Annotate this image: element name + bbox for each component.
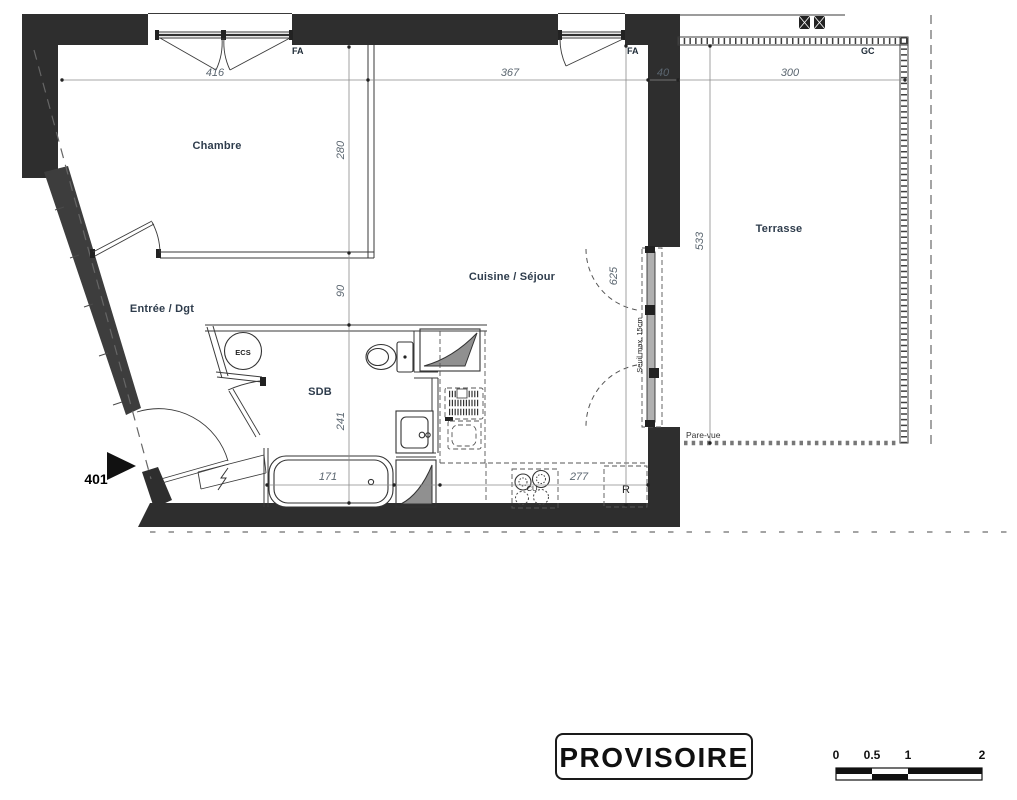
dim-sejour-depth: 625 — [608, 266, 620, 285]
dim-corridor: 90 — [335, 284, 347, 297]
dim-chambre-width: 416 — [206, 67, 225, 79]
room-label-sdb: SDB — [308, 386, 332, 398]
railing-label: GC — [861, 46, 875, 56]
lower-cabinet — [396, 460, 436, 507]
dim-bathtub: 171 — [319, 471, 337, 483]
scale-tick-2: 2 — [979, 748, 986, 762]
posts — [799, 16, 825, 29]
entry-closet — [198, 455, 266, 490]
dim-sdb-depth: 241 — [335, 412, 347, 431]
dim-sejour-width: 367 — [501, 67, 520, 79]
floor-plan-401: FA FA — [0, 0, 1017, 800]
window-chambre: FA — [148, 14, 304, 71]
scale-tick-1: 1 — [905, 748, 912, 762]
room-label-chambre: Chambre — [192, 140, 241, 152]
water-heater-label: ECS — [235, 348, 250, 357]
water-heater: ECS — [225, 333, 262, 370]
stamp-label: PROVISOIRE — [559, 742, 748, 773]
window-sejour-label: FA — [627, 46, 639, 56]
door-sdb — [228, 381, 260, 437]
bay-window-door: Seuil max. 15cm — [586, 246, 662, 427]
dim-terrasse-depth: 533 — [694, 231, 706, 250]
kitchen: CU R — [396, 329, 648, 508]
scale-tick-0: 0 — [833, 748, 840, 762]
terrasse: GC Pare-vue — [678, 15, 931, 445]
floor-plan-sheet: FA FA — [0, 0, 1017, 800]
dim-chambre-depth: 280 — [335, 140, 347, 160]
overhang-dashed-line — [34, 50, 151, 479]
provisoire-stamp: PROVISOIRE — [556, 734, 752, 779]
unit-number: 401 — [84, 471, 108, 487]
toilet — [366, 342, 413, 372]
window-chambre-label: FA — [292, 46, 304, 56]
room-label-cuisine-sejour: Cuisine / Séjour — [469, 271, 556, 283]
diagonal-facade-wall — [44, 166, 141, 415]
upper-cabinet — [424, 333, 477, 366]
dim-kitchen-counter: 277 — [569, 471, 589, 483]
dim-terrasse-width: 300 — [781, 67, 800, 79]
oven — [445, 388, 483, 421]
entry-door-jamb — [142, 467, 172, 508]
scale-bar: 0 0.5 1 2 — [833, 748, 986, 780]
scale-tick-05: 0.5 — [864, 748, 881, 762]
cooktop: CU — [512, 469, 558, 508]
exterior-walls — [22, 14, 680, 527]
room-label-terrasse: Terrasse — [756, 223, 803, 235]
kitchen-sink — [448, 421, 481, 449]
electrical-panel-icon — [218, 468, 228, 490]
privacy-screen-label: Pare-vue — [686, 430, 721, 440]
room-label-entree: Entrée / Dgt — [130, 303, 194, 315]
railing — [678, 37, 908, 443]
door-chambre — [90, 221, 161, 258]
privacy-screen: Pare-vue — [684, 430, 898, 443]
entry-arrow-icon — [107, 452, 136, 480]
fridge: R — [604, 466, 647, 507]
threshold-note: Seuil max. 15cm — [635, 317, 644, 372]
dim-wall-thickness: 40 — [657, 67, 670, 79]
washbasin — [396, 411, 433, 453]
